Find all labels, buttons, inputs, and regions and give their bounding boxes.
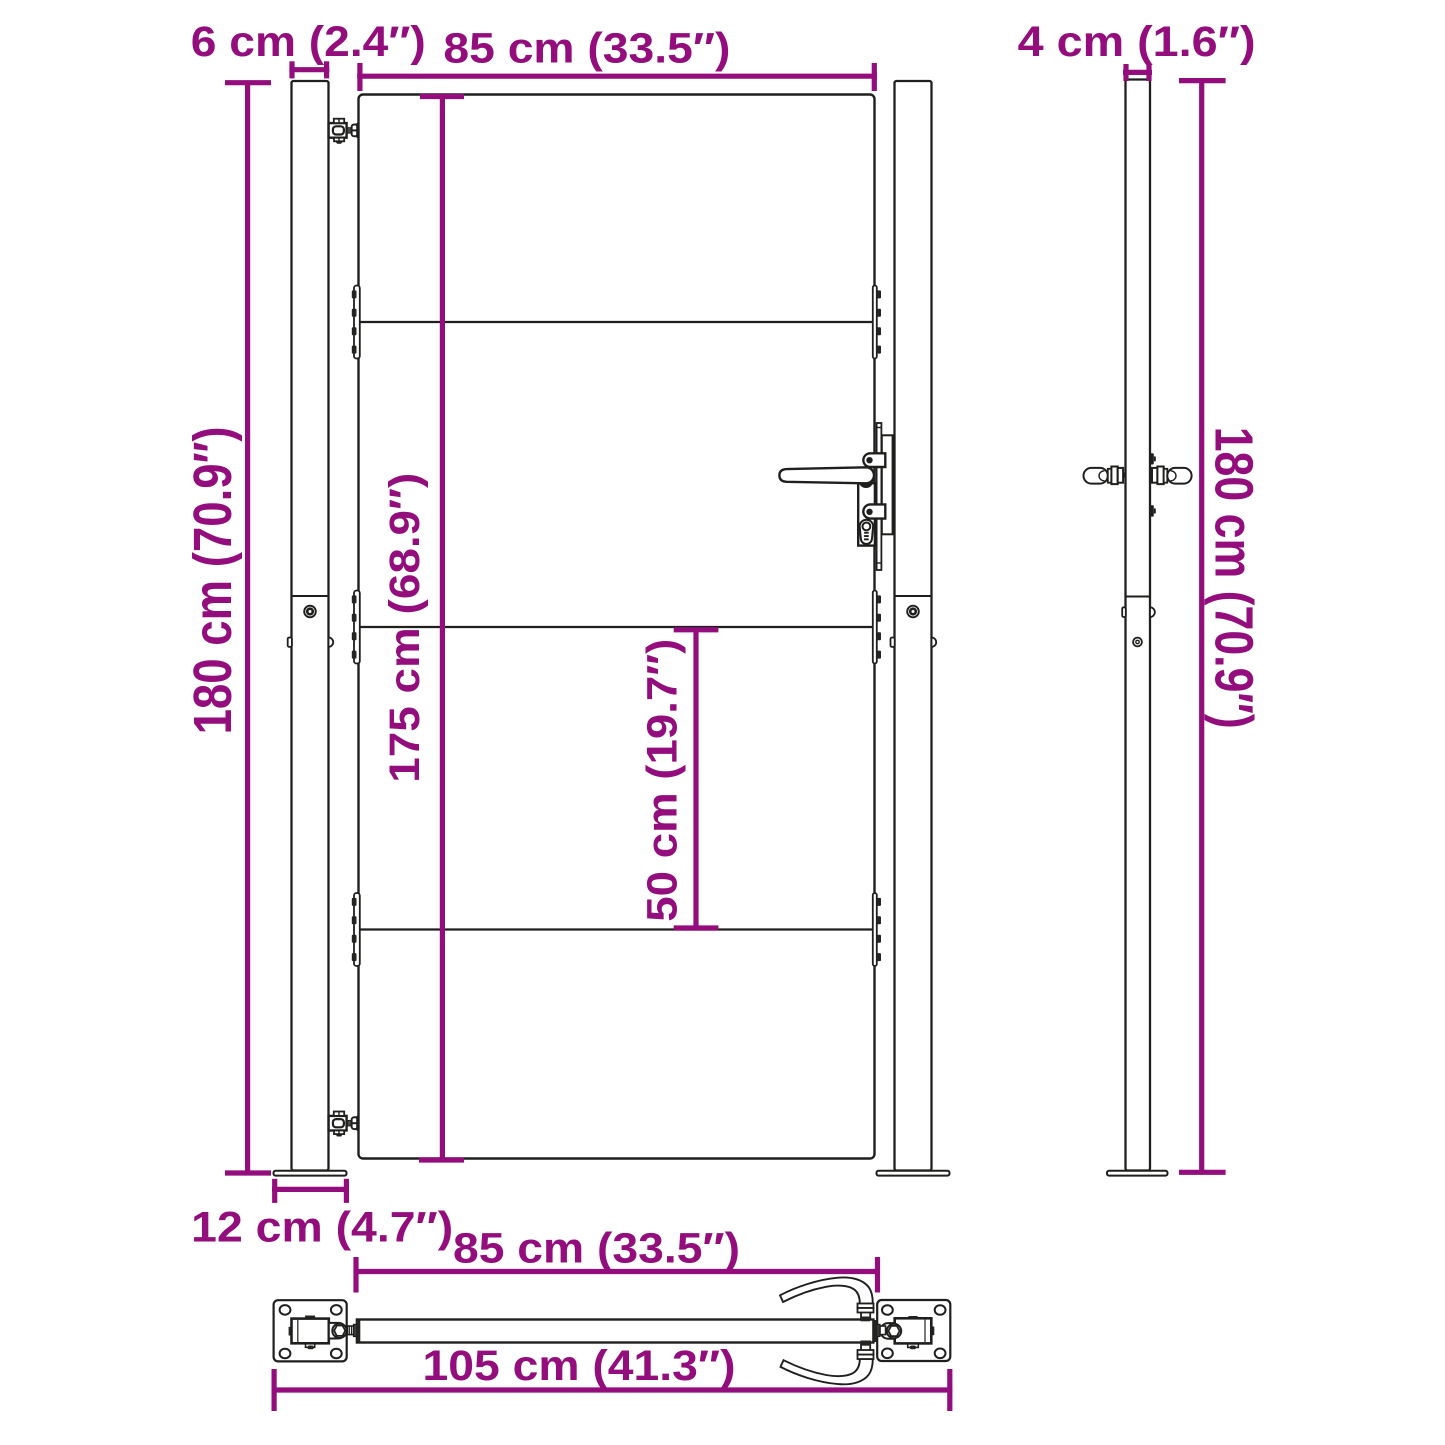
svg-text:50 cm (19.7″): 50 cm (19.7″): [638, 639, 686, 922]
svg-text:4 cm (1.6″): 4 cm (1.6″): [1018, 18, 1256, 66]
svg-text:6 cm (2.4″): 6 cm (2.4″): [191, 18, 426, 66]
svg-text:85 cm (33.5″): 85 cm (33.5″): [453, 1225, 740, 1273]
svg-text:105 cm (41.3″): 105 cm (41.3″): [423, 1342, 736, 1390]
svg-text:180 cm (70.9″): 180 cm (70.9″): [1204, 427, 1264, 729]
svg-text:12 cm (4.7″): 12 cm (4.7″): [191, 1204, 453, 1252]
svg-text:180 cm (70.9″): 180 cm (70.9″): [183, 426, 243, 734]
svg-text:175 cm (68.9″): 175 cm (68.9″): [381, 473, 429, 783]
svg-text:85 cm (33.5″): 85 cm (33.5″): [443, 25, 730, 73]
